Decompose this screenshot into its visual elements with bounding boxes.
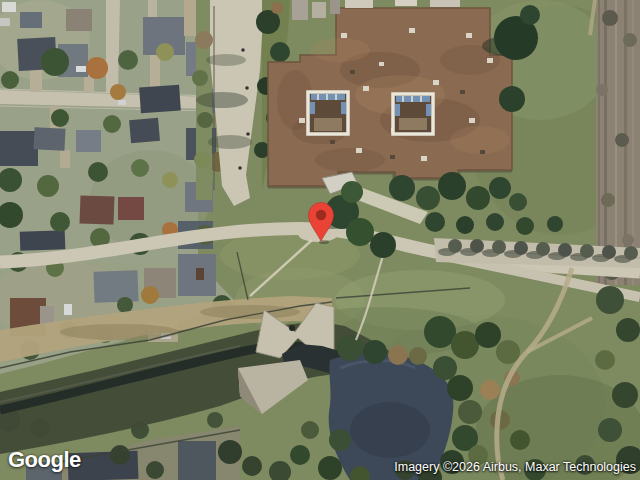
pin-dot: [316, 210, 326, 220]
bare-tree-strip: [596, 0, 640, 285]
google-logo[interactable]: Google: [8, 447, 81, 473]
imagery-attribution: Imagery ©2026 Airbus, Maxar Technologies: [394, 460, 636, 474]
satellite-imagery: [0, 0, 640, 480]
map-canvas[interactable]: Google Imagery ©2026 Airbus, Maxar Techn…: [0, 0, 640, 480]
courtyard-east: [393, 94, 433, 134]
courtyard-west: [308, 92, 348, 134]
